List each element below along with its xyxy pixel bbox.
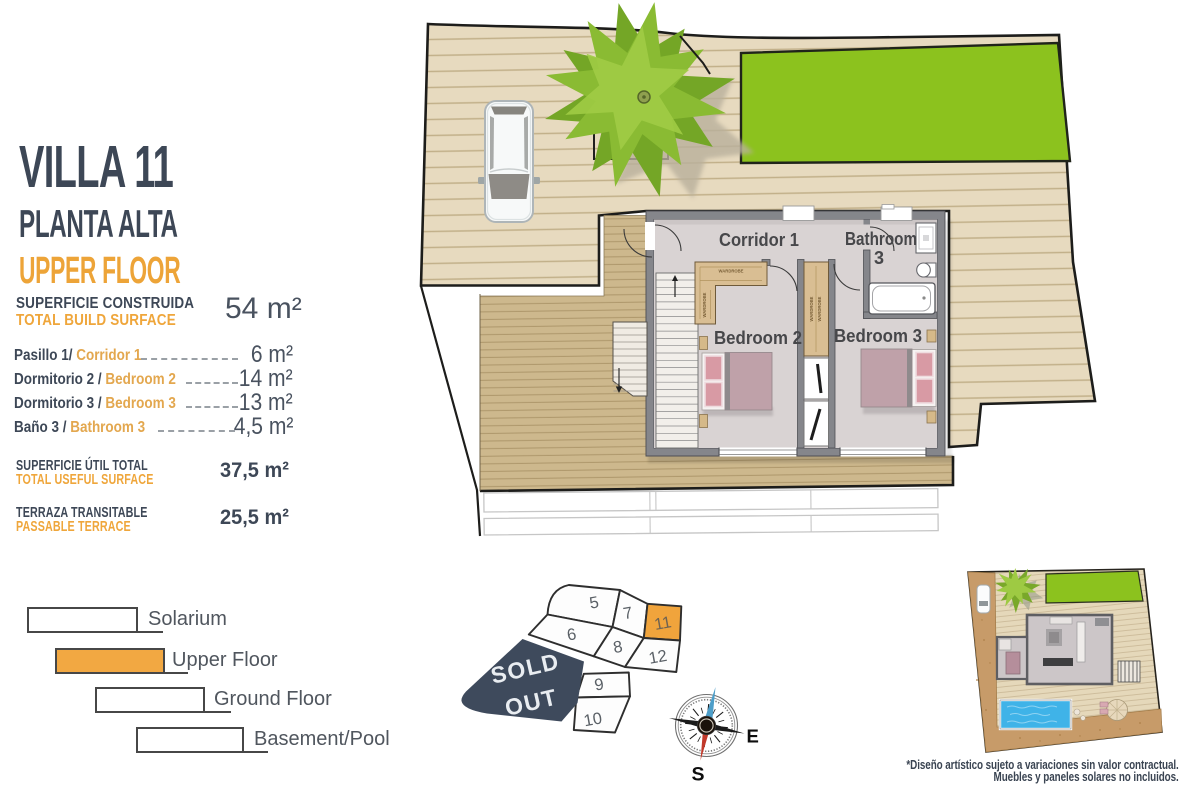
svg-text:WARDROBE: WARDROBE xyxy=(809,296,814,321)
svg-text:Bathroom: Bathroom xyxy=(845,229,917,249)
svg-text:WARDROBE: WARDROBE xyxy=(702,292,707,317)
svg-text:Bedroom 3: Bedroom 3 xyxy=(834,326,922,346)
svg-text:S: S xyxy=(692,764,705,786)
svg-text:Bedroom 2: Bedroom 2 xyxy=(714,328,802,348)
svg-text:11: 11 xyxy=(653,613,673,634)
svg-text:E: E xyxy=(747,726,759,747)
svg-text:WARDROBE: WARDROBE xyxy=(719,269,744,274)
svg-text:WARDROBE: WARDROBE xyxy=(817,296,822,321)
svg-text:3: 3 xyxy=(874,248,884,268)
svg-text:Corridor 1: Corridor 1 xyxy=(719,230,799,250)
svg-text:12: 12 xyxy=(647,647,668,668)
svg-text:10: 10 xyxy=(582,709,603,730)
